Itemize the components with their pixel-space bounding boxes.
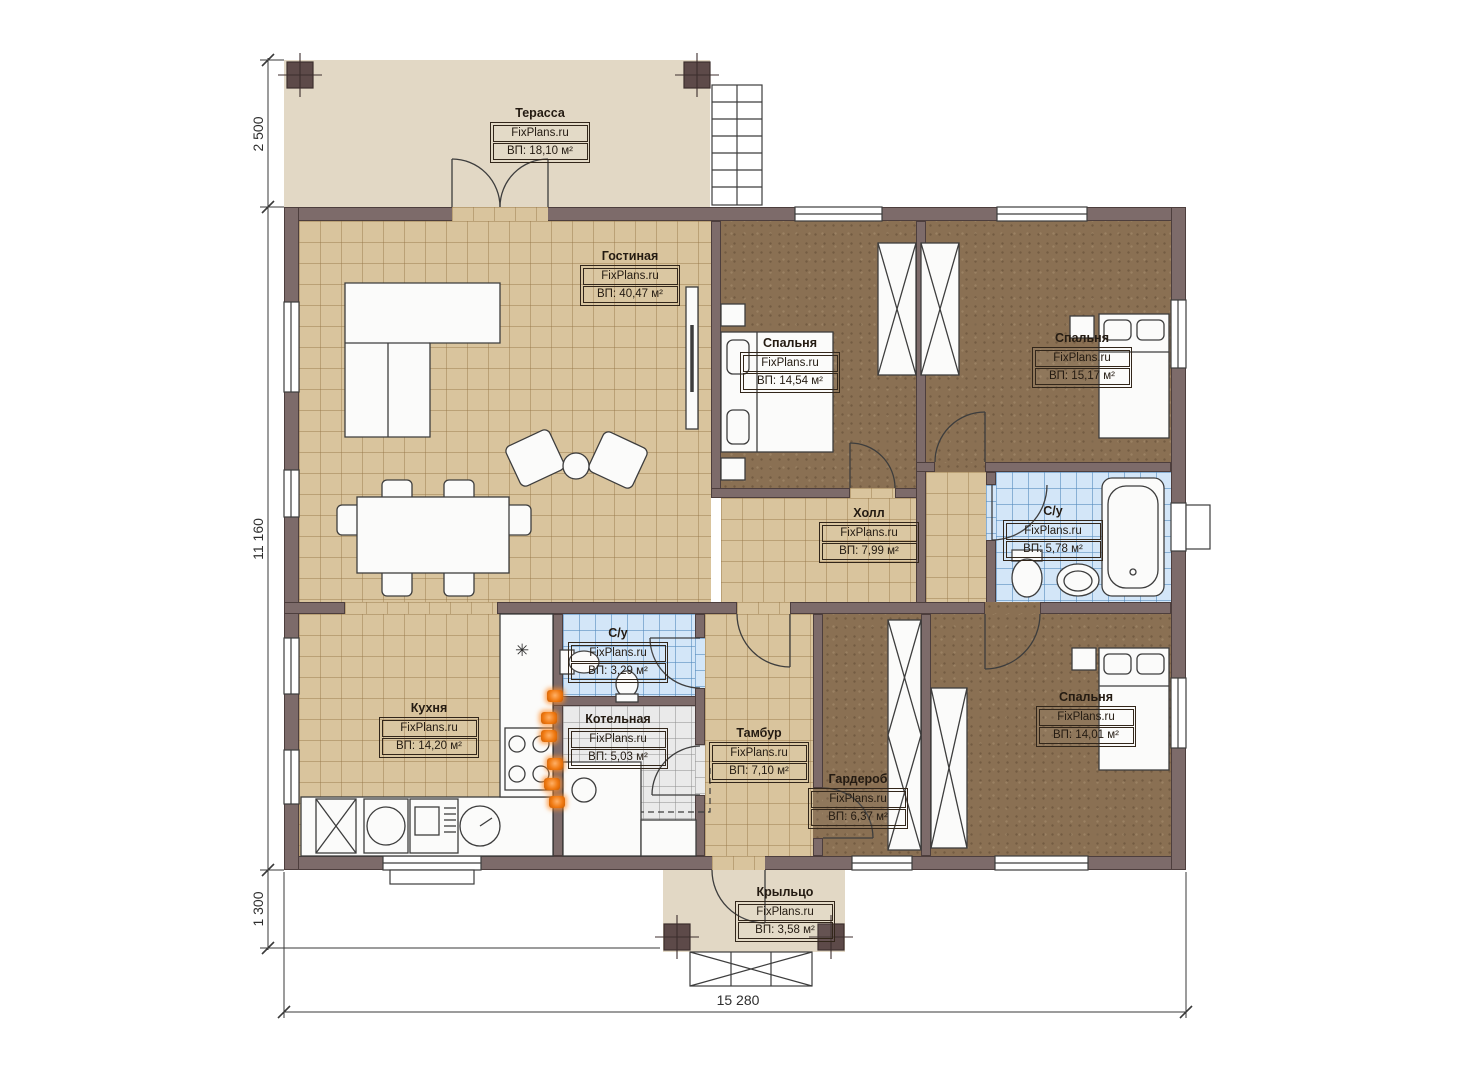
room-area: ВП: 40,47 м² [583, 286, 678, 303]
room-label-bedroom1: Спальня FixPlans.ru ВП: 14,54 м² [740, 336, 840, 393]
wall-vestibule-b [695, 688, 705, 745]
door-gap [695, 638, 705, 688]
brand-watermark: FixPlans.ru [1035, 350, 1130, 367]
brand-watermark: FixPlans.ru [1039, 709, 1134, 726]
wall-exterior-left [284, 207, 299, 870]
room-name: Спальня [740, 336, 840, 351]
brand-watermark: FixPlans.ru [382, 720, 477, 737]
room-name: Кухня [379, 701, 479, 716]
wall-wardrobe-b [813, 838, 823, 856]
door-gap [737, 602, 790, 614]
wall-bedroom2-hall-a [916, 462, 935, 472]
brand-watermark: FixPlans.ru [743, 355, 838, 372]
room-name: Крыльцо [735, 885, 835, 900]
brand-watermark: FixPlans.ru [811, 791, 906, 808]
utility-marker-icon [547, 690, 563, 702]
room-area: ВП: 3,58 м² [738, 922, 833, 939]
wall-bedroom2-bath-b [985, 462, 1171, 472]
room-name: Гостиная [580, 249, 680, 264]
utility-marker-icon [541, 730, 557, 742]
utility-marker-icon [547, 758, 563, 770]
dimension-bottom: 15 280 [706, 992, 770, 1008]
brand-watermark: FixPlans.ru [712, 745, 807, 762]
wall-bath-hall-a [986, 472, 996, 485]
utility-marker-icon [541, 712, 557, 724]
door-gap [985, 602, 1040, 614]
room-label-vestibule: Тамбур FixPlans.ru ВП: 7,10 м² [709, 726, 809, 783]
room-area: ВП: 14,54 м² [743, 373, 838, 390]
room-area: ВП: 7,99 м² [822, 543, 917, 560]
room-name: Холл [819, 506, 919, 521]
room-area: ВП: 14,20 м² [382, 738, 477, 755]
door-gap [850, 488, 895, 498]
dimension-left-bottom: 1 300 [250, 879, 266, 939]
room-name: Спальня [1032, 331, 1132, 346]
room-name: Спальня [1036, 690, 1136, 705]
room-name: С/у [1003, 504, 1103, 519]
room-name: Котельная [568, 712, 668, 727]
room-label-bathroom-small: С/у FixPlans.ru ВП: 3,29 м² [568, 626, 668, 683]
room-name: С/у [568, 626, 668, 641]
room-label-bathroom-main: С/у FixPlans.ru ВП: 5,78 м² [1003, 504, 1103, 561]
dimension-left-middle: 11 160 [250, 509, 266, 569]
room-name: Гардероб [808, 772, 908, 787]
room-label-bedroom2: Спальня FixPlans.ru ВП: 15,17 м² [1032, 331, 1132, 388]
brand-watermark: FixPlans.ru [583, 268, 678, 285]
wall-wardrobe-bedroom3 [921, 614, 931, 856]
room-area: ВП: 18,10 м² [493, 143, 588, 160]
room-name: Терасса [490, 106, 590, 121]
brand-watermark: FixPlans.ru [1006, 523, 1101, 540]
brand-watermark: FixPlans.ru [738, 904, 833, 921]
brand-watermark: FixPlans.ru [493, 125, 588, 142]
door-gap [935, 462, 985, 472]
wall-wardrobe-a [813, 614, 823, 788]
wall-living-bedroom1 [711, 221, 721, 498]
wall-mid-b [497, 602, 737, 614]
wall-vestibule-c [695, 795, 705, 856]
room-label-wardrobe: Гардероб FixPlans.ru ВП: 6,37 м² [808, 772, 908, 829]
hall-floor-2 [926, 472, 986, 602]
wall-mid-d [1040, 602, 1171, 614]
floor-plan: Терасса FixPlans.ru ВП: 18,10 м² Гостина… [0, 0, 1473, 1080]
wall-bedroom1-hall-a [711, 488, 850, 498]
wall-exterior-right [1171, 207, 1186, 870]
brand-watermark: FixPlans.ru [571, 645, 666, 662]
door-gap [345, 602, 497, 614]
door-gap [452, 207, 548, 221]
room-area: ВП: 7,10 м² [712, 763, 807, 780]
wall-vestibule-a [695, 614, 705, 638]
utility-marker-icon [549, 796, 565, 808]
room-area: ВП: 3,29 м² [571, 663, 666, 680]
wall-mid-c [790, 602, 985, 614]
room-label-porch: Крыльцо FixPlans.ru ВП: 3,58 м² [735, 885, 835, 942]
room-label-living: Гостиная FixPlans.ru ВП: 40,47 м² [580, 249, 680, 306]
room-label-bedroom3: Спальня FixPlans.ru ВП: 14,01 м² [1036, 690, 1136, 747]
room-label-hall: Холл FixPlans.ru ВП: 7,99 м² [819, 506, 919, 563]
room-area: ВП: 6,37 м² [811, 809, 906, 826]
brand-watermark: FixPlans.ru [822, 525, 917, 542]
brand-watermark: FixPlans.ru [571, 731, 666, 748]
wall-exterior-top [284, 207, 1186, 221]
room-area: ВП: 14,01 м² [1039, 727, 1134, 744]
room-label-kitchen: Кухня FixPlans.ru ВП: 14,20 м² [379, 701, 479, 758]
wall-mid-a [284, 602, 345, 614]
room-name: Тамбур [709, 726, 809, 741]
room-label-boiler: Котельная FixPlans.ru ВП: 5,03 м² [568, 712, 668, 769]
room-area: ВП: 15,17 м² [1035, 368, 1130, 385]
door-gap [986, 485, 996, 540]
room-area: ВП: 5,78 м² [1006, 541, 1101, 558]
room-area: ВП: 5,03 м² [571, 749, 666, 766]
utility-marker-icon [544, 778, 560, 790]
room-label-terrace: Терасса FixPlans.ru ВП: 18,10 м² [490, 106, 590, 163]
dimension-left-top: 2 500 [250, 104, 266, 164]
door-gap [695, 745, 705, 795]
door-gap [712, 856, 765, 870]
wall-bath-boiler [553, 696, 705, 706]
fridge-icon: ✳ [515, 642, 529, 659]
